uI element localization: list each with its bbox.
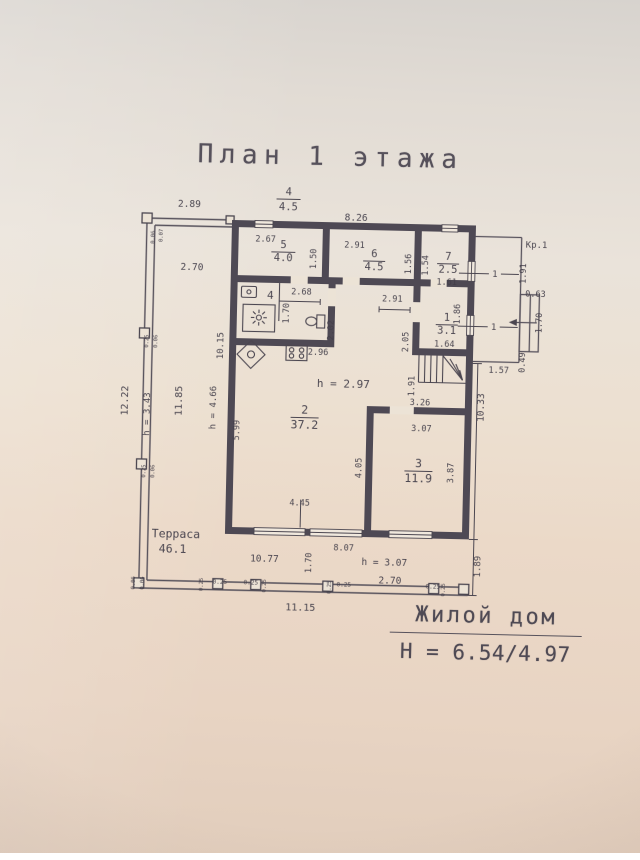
room-6-area: 4.5 [364, 261, 383, 273]
dimension-label: 0.25 [144, 334, 150, 347]
dimension-label: 2.89 [178, 199, 201, 211]
room-4-ref-area: 4.5 [279, 201, 298, 213]
dimension-label: 0.63 [525, 290, 546, 300]
plan-footer: Жилой дом H = 6.54/4.97 [389, 602, 582, 667]
dimension-label: 1.91 [407, 376, 417, 397]
porch-label: Кр.1 [526, 241, 548, 251]
dimension-label: h = 3.07 [361, 557, 407, 569]
sink-icon [241, 286, 256, 297]
room-3-area: 11.9 [404, 471, 432, 486]
labels-layer: 2.8944.58.26Кр.10.060.072.702.6754.01.50… [115, 183, 548, 620]
plan-sheet: План 1 этажа [0, 0, 640, 860]
dimension-label: h = 4.66 [208, 386, 219, 430]
dimension-label: 0.06 [151, 230, 157, 243]
dimension-label: 1.70 [304, 552, 314, 573]
dimension-label: 0.25 [262, 579, 268, 592]
dimension-label: 1.70 [282, 303, 292, 324]
dimension-label: 12.22 [120, 385, 132, 415]
dimension-label: 11.15 [285, 602, 315, 614]
room-7-number: 7 [445, 251, 452, 263]
dimension-label: 1.86 [453, 304, 463, 325]
building-type-label: Жилой дом [390, 602, 583, 637]
room-5-number: 5 [280, 239, 287, 251]
dimension-label: 2.02 [326, 320, 336, 341]
dimension-label: 0.06 [131, 576, 137, 589]
dimension-label: 8.26 [345, 213, 368, 225]
dimension-label: 0.25 [337, 581, 352, 588]
stove-icon [286, 345, 307, 360]
dimension-label: 10.77 [250, 553, 279, 565]
room-2-area: 37.2 [290, 417, 318, 432]
floor-plan-drawing: 2.8944.58.26Кр.10.060.072.702.6754.01.50… [0, 0, 640, 860]
dimension-label: 3.07 [411, 424, 432, 434]
dimension-label: 0.25 [199, 578, 205, 591]
dimension-label: 4.05 [354, 458, 364, 479]
stairs [418, 355, 466, 383]
dimension-label: 0.07 [159, 229, 165, 242]
terrace-name: Терраса [152, 526, 201, 541]
opening-marker-1: 1 [492, 270, 498, 280]
dimension-label: 11.85 [174, 386, 186, 416]
room-6-number: 6 [371, 248, 378, 260]
dimension-label: 0.25 [213, 579, 228, 586]
shower-icon [243, 304, 276, 332]
dimension-label: 1.50 [309, 248, 319, 269]
dimension-label: 1.70 [535, 313, 545, 334]
dimension-label: 0.25 [141, 464, 147, 477]
dimension-label: 1.91 [519, 263, 529, 284]
room-4-ref-number: 4 [285, 186, 292, 198]
opening-marker-2: 1 [491, 323, 497, 333]
dimension-label: 2.70 [180, 262, 203, 274]
dimension-label: 2.96 [308, 348, 329, 358]
dimension-label: 0.06 [153, 335, 159, 348]
dimension-label: 2.91 [344, 241, 365, 251]
dimension-label: 1.57 [488, 366, 509, 376]
entry-arrow-icon [509, 319, 517, 326]
ceiling-height-note: h = 2.97 [317, 377, 370, 391]
dimension-label: 0.25 [425, 583, 440, 590]
dimension-label: 5.99 [232, 420, 242, 441]
dimension-label: 0.06 [150, 465, 156, 478]
dimension-label: 0.25 [441, 583, 447, 596]
room-5-area: 4.0 [274, 252, 293, 264]
toilet-icon [317, 315, 325, 328]
dimension-label: 10.33 [476, 393, 488, 422]
room-4-marker: 4 [267, 289, 274, 302]
terrace-area: 46.1 [159, 541, 187, 556]
dimension-label: 1.56 [404, 254, 414, 275]
room-1-area: 3.1 [437, 325, 456, 337]
dimension-label: 0.06 [140, 576, 146, 589]
dimension-label: 1.64 [434, 340, 455, 350]
dimension-label: 4.45 [289, 498, 310, 508]
dimension-label: 0.25 [244, 579, 259, 586]
dimension-label: 8.07 [333, 543, 354, 553]
dimension-label: 2.68 [291, 287, 312, 297]
dimension-label: 2.05 [401, 332, 411, 353]
dimension-label: 0.25 [327, 581, 333, 594]
room-3-number: 3 [415, 456, 422, 470]
dimension-label: 1.89 [473, 556, 483, 578]
dimension-label: 1.61 [436, 278, 457, 288]
dimension-label: 10.15 [216, 332, 227, 359]
photo-background: План 1 этажа [0, 0, 640, 853]
dimension-label: 1.54 [421, 255, 431, 276]
room-7-area: 2.5 [438, 264, 457, 276]
building-height-label: H = 6.54/4.97 [389, 633, 582, 667]
dimension-label: 2.91 [382, 294, 403, 304]
dimension-label: 3.26 [410, 398, 431, 408]
dimension-label: 2.70 [378, 575, 401, 587]
room-1-number: 1 [444, 312, 451, 324]
dimension-label: h = 3.43 [142, 392, 153, 436]
dimension-label: 0.49 [518, 352, 528, 373]
dimension-label: 2.67 [255, 234, 276, 244]
dimension-label: 3.87 [446, 463, 456, 484]
room-2-number: 2 [301, 403, 308, 417]
